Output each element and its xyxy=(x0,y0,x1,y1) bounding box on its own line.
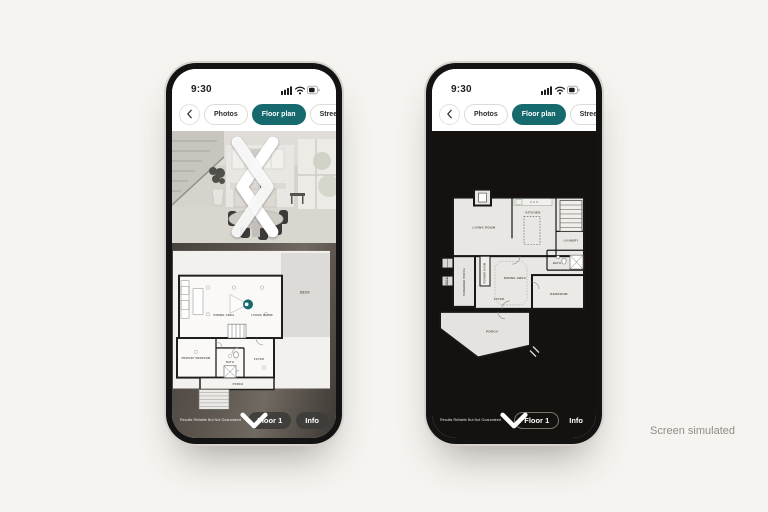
status-icons xyxy=(541,85,581,95)
room-label-deck: DECK xyxy=(300,290,310,294)
room-label-dining: DINING AREA xyxy=(504,276,527,280)
room-label-porch: PORCH xyxy=(233,382,244,386)
battery-icon xyxy=(568,86,580,93)
tab-floor-plan[interactable]: Floor plan xyxy=(252,104,306,125)
battery-icon xyxy=(308,86,320,93)
back-button[interactable] xyxy=(179,104,200,125)
chevron-down-icon xyxy=(180,412,328,429)
room-label-primary-bedroom: PRIMARY BEDROOM xyxy=(182,357,211,360)
phone-right-screen: 9:30 xyxy=(432,69,596,438)
room-label-foyer: FOYER xyxy=(494,297,504,301)
back-button[interactable] xyxy=(439,104,460,125)
room-label-laundry: LAUNDRY xyxy=(564,238,579,242)
screen-simulated-caption: Screen simulated xyxy=(650,425,735,437)
chevron-down-icon xyxy=(440,412,588,429)
phone-left-screen: 9:30 xyxy=(172,69,336,438)
wifi-icon xyxy=(556,87,565,94)
canvas: 9:30 xyxy=(0,0,768,512)
room-label-porch: PORCH xyxy=(486,330,498,334)
status-bar: 9:30 xyxy=(432,69,596,97)
plan-footer: Results Reliable But Not Guaranteed Floo… xyxy=(180,412,328,429)
room-label-living: LIVING ROOM xyxy=(473,225,496,229)
phone-right: 9:30 xyxy=(426,63,602,444)
room-label-bedroom: BEDROOM xyxy=(550,292,568,296)
chevron-left-icon xyxy=(186,109,193,119)
footer-chips: Floor 1 Info xyxy=(514,412,588,429)
tab-street-view[interactable]: Street view xyxy=(570,104,596,125)
room-label-deck: DECK xyxy=(445,277,448,285)
chevron-left-icon xyxy=(446,109,453,119)
tab-bar: Photos Floor plan Street view xyxy=(432,97,596,131)
signal-icon xyxy=(281,86,292,95)
room-label-living: LIVING ROOM xyxy=(251,313,273,317)
tab-photos[interactable]: Photos xyxy=(204,104,248,125)
room-label-screened-porch: SCREENED PORCH xyxy=(462,268,466,296)
floor-selector[interactable]: Floor 1 xyxy=(248,412,291,429)
status-time: 9:30 xyxy=(191,84,212,95)
footer-chips: Floor 1 Info xyxy=(248,412,328,429)
tab-floor-plan[interactable]: Floor plan xyxy=(512,104,566,125)
floor-plan-right: LIVING ROOM KITCHEN LAUNDRY BATH DINING … xyxy=(432,131,596,438)
floor-selector[interactable]: Floor 1 xyxy=(514,412,559,429)
phone-left: 9:30 xyxy=(166,63,342,444)
status-bar: 9:30 xyxy=(172,69,336,97)
floor-plan-viewport-left[interactable]: DECK xyxy=(172,243,336,438)
tab-bar: Photos Floor plan Street view xyxy=(172,97,336,131)
photo-carousel[interactable] xyxy=(172,131,336,243)
room-label-powder-room: POWDER ROOM xyxy=(484,263,486,284)
floor-plan-viewport-right[interactable]: LIVING ROOM KITCHEN LAUNDRY BATH DINING … xyxy=(432,131,596,438)
tab-photos[interactable]: Photos xyxy=(464,104,508,125)
plan-footer: Results Reliable But Not Guaranteed Floo… xyxy=(440,412,588,429)
status-icons xyxy=(281,85,321,95)
room-label-bath: BATH xyxy=(553,261,561,265)
room-label-kitchen: KITCHEN xyxy=(525,210,540,214)
room-label-dining: DINING AREA xyxy=(213,313,234,317)
wifi-icon xyxy=(296,87,305,94)
signal-icon xyxy=(541,86,552,95)
room-label-foyer: FOYER xyxy=(254,357,264,361)
room-label-bath: BATH xyxy=(226,360,234,364)
tab-street-view[interactable]: Street view xyxy=(310,104,336,125)
floor-plan-left: DECK xyxy=(172,243,336,438)
status-time: 9:30 xyxy=(451,84,472,95)
carousel-next-icon[interactable] xyxy=(172,131,336,243)
